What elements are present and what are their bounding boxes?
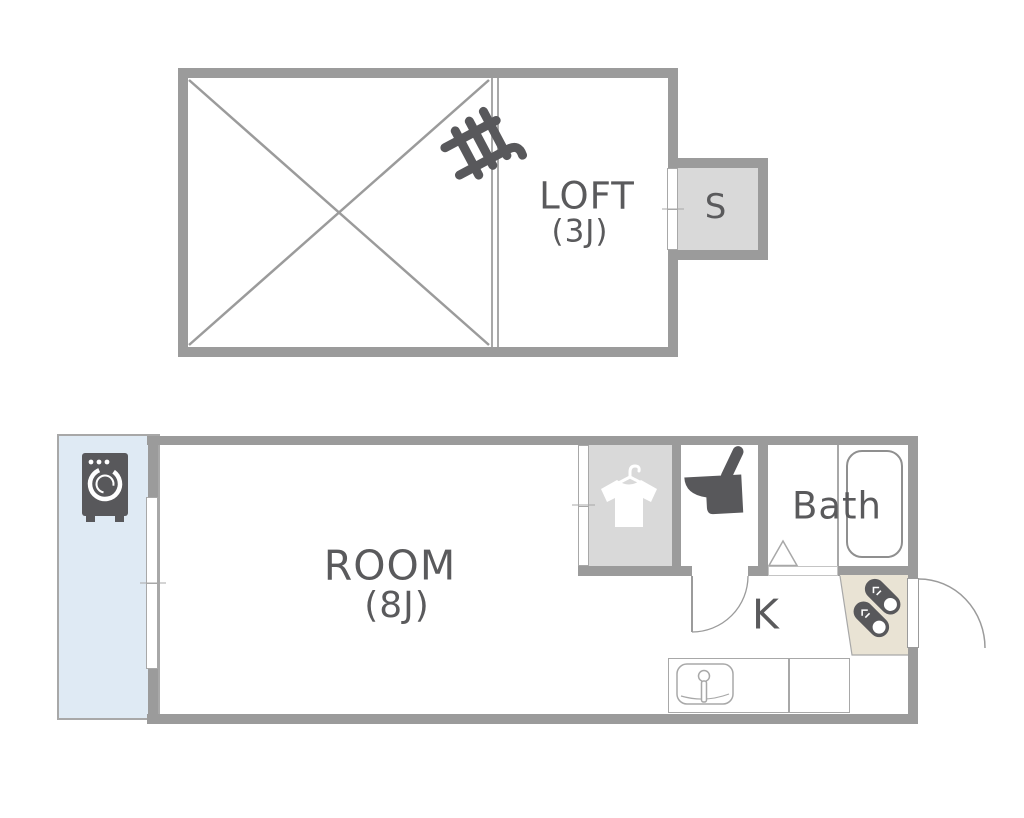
ladder-icon — [438, 105, 522, 186]
balcony-floor — [57, 434, 160, 720]
wall-segment — [838, 566, 918, 576]
wall-segment — [672, 445, 681, 566]
bath-threshold — [768, 566, 838, 576]
toilet-door-swing — [692, 576, 748, 632]
closet-sliding-door — [578, 445, 589, 566]
wall-segment — [758, 158, 768, 260]
wall-segment — [178, 68, 678, 78]
wall-segment — [748, 566, 768, 576]
entrance-genkan-floor — [838, 575, 908, 655]
bath-door-triangle — [769, 541, 797, 566]
room-label: ROOM — [324, 546, 456, 587]
void-x-mark — [189, 80, 489, 345]
loft-divider-line — [497, 78, 499, 347]
loft-room-label: LOFT — [539, 178, 635, 215]
bath-label: Bath — [792, 488, 882, 525]
loft-room-size-label: (3J) — [551, 217, 608, 248]
wall-segment — [178, 78, 188, 347]
storage-sliding-door — [667, 168, 678, 250]
closet-floor — [589, 445, 672, 566]
toilet-icon — [683, 452, 743, 516]
wall-segment — [668, 250, 768, 260]
wall-segment — [147, 714, 918, 724]
wall-segment — [758, 445, 768, 566]
wall-segment — [578, 566, 692, 576]
room-size-label: (8J) — [364, 588, 430, 624]
storage-label: S — [705, 190, 728, 224]
wall-segment — [668, 158, 768, 168]
front-door-leaf — [907, 578, 919, 648]
kitchen-label: K — [752, 595, 780, 636]
kitchen-counter — [668, 658, 850, 713]
balcony-sliding-window — [146, 497, 158, 669]
wall-segment — [147, 436, 918, 445]
front-door-swing — [919, 579, 985, 648]
loft-divider-line — [491, 78, 493, 347]
floor-plan-canvas: LOFT (3J) S ROOM — [0, 0, 1024, 818]
counter-divider-line — [788, 659, 790, 712]
wall-segment — [178, 347, 678, 357]
